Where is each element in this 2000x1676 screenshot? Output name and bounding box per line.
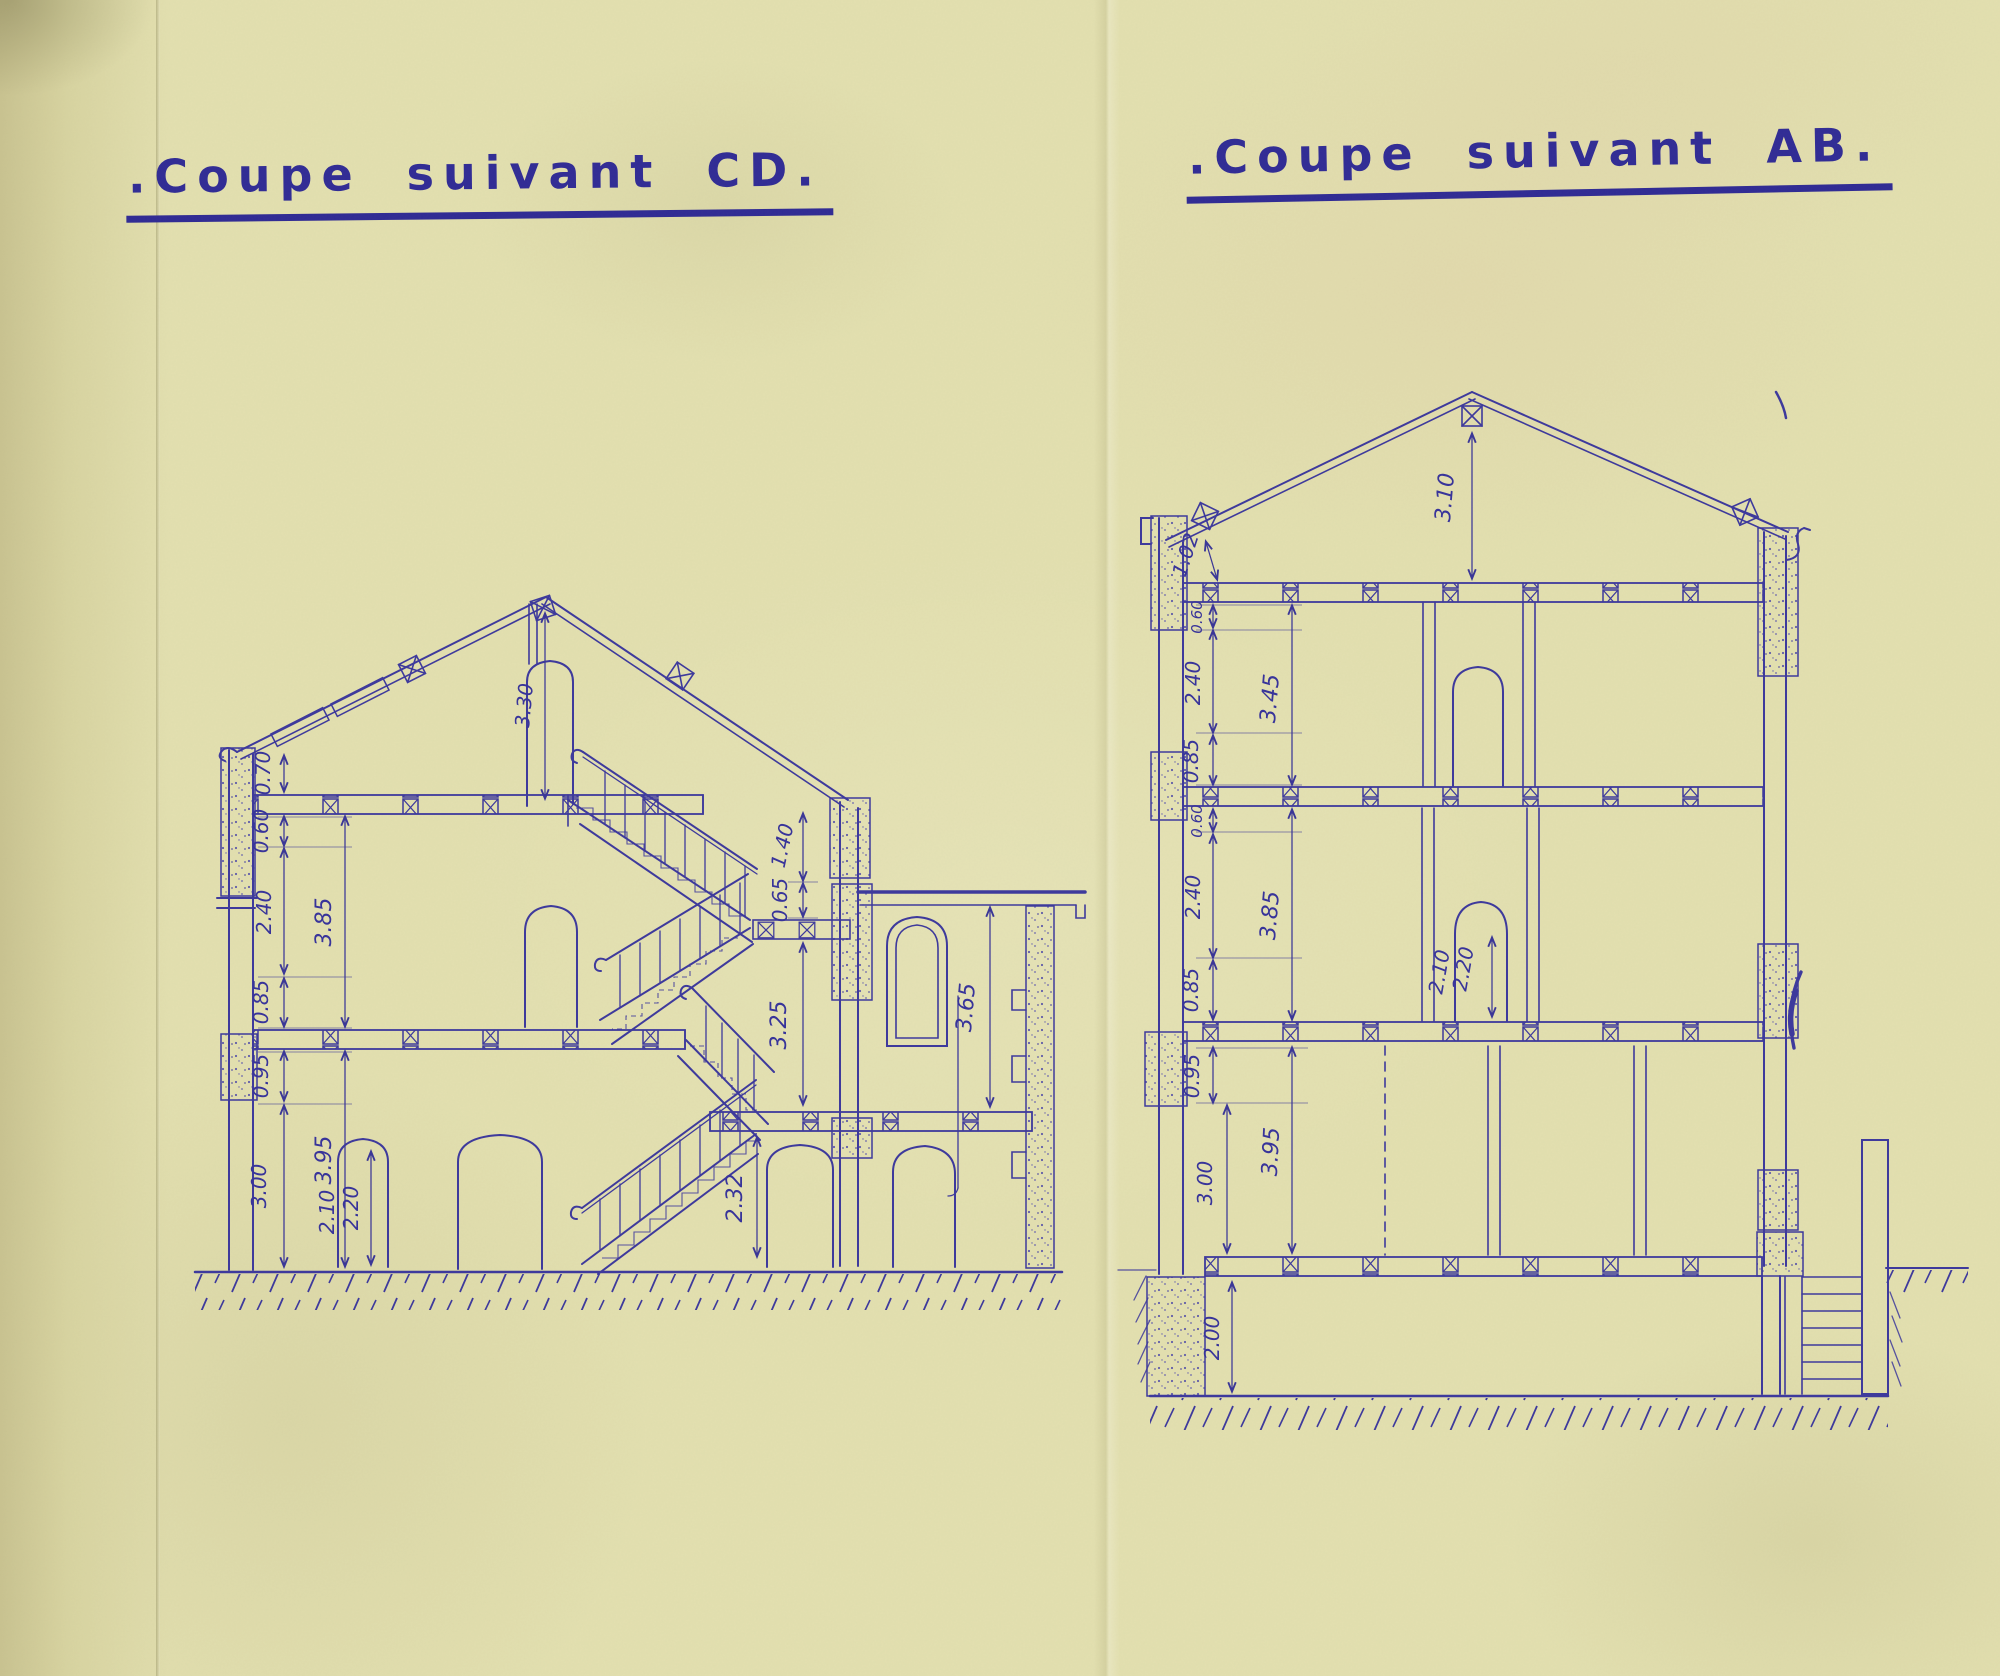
dim-label: 2.40 xyxy=(252,890,276,935)
dim-label: 3.85 xyxy=(312,898,337,947)
dim-label: 0.60 xyxy=(1188,804,1206,837)
blueprint-paper: { "paper": { "background": "#e3e0b0", "i… xyxy=(0,0,2000,1676)
dim-label: 2.32 xyxy=(723,1174,748,1223)
dim-label: 2.40 xyxy=(1181,661,1205,706)
dim-label: 0.85 xyxy=(249,980,273,1025)
dim-label: 2.00 xyxy=(1200,1316,1224,1361)
dim-label: 3.95 xyxy=(1258,1127,1286,1177)
dim-label: 0.70 xyxy=(251,751,275,796)
dim-label: 3.25 xyxy=(767,1001,792,1050)
dim-label: 0.85 xyxy=(1179,739,1203,784)
dim-label: 0.65 xyxy=(768,878,792,923)
drawing-canvas: 0.70 0.60 2.40 3.85 0.85 0.95 3.00 3.95 … xyxy=(0,0,2000,1676)
dim-label: 3.00 xyxy=(1193,1161,1217,1206)
dim-label: 0.85 xyxy=(1179,968,1203,1013)
dim-label: 3.65 xyxy=(952,982,981,1033)
dim-label: 2.40 xyxy=(1181,875,1205,920)
dim-label: 0.60 xyxy=(1188,600,1206,633)
dim-label: 3.95 xyxy=(312,1136,337,1185)
dim-label: 3.45 xyxy=(1256,673,1285,724)
dim-label: 0.95 xyxy=(249,1054,273,1099)
dim-label: 2.10 xyxy=(315,1190,339,1235)
dim-label: 3.00 xyxy=(247,1164,271,1209)
dim-label: 3.30 xyxy=(510,682,538,728)
dim-label: 2.20 xyxy=(339,1186,363,1231)
dim-label: 3.10 xyxy=(1431,472,1460,523)
cd-ground xyxy=(195,1272,1062,1310)
dim-label: 3.85 xyxy=(1256,890,1285,941)
dim-label: 0.95 xyxy=(1180,1054,1204,1099)
dim-label: 0.60 xyxy=(249,809,273,854)
